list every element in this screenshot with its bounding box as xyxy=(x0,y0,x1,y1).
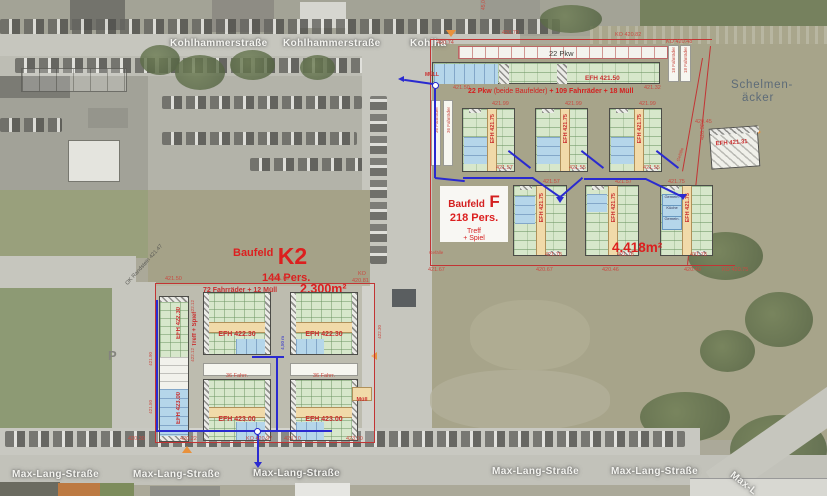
building-elevation-label: EFH 421.31 xyxy=(716,139,748,147)
stair-core xyxy=(592,186,604,190)
building-elevation-label: EFH 423.00 xyxy=(176,392,182,424)
path-line xyxy=(584,178,646,180)
summary-bold: 22 Pkw xyxy=(468,88,492,95)
baufeld-k2-letter: K2 xyxy=(278,243,307,269)
building-f-mid-3: EFH 421.75 xyxy=(609,108,662,172)
street-label-maxlang: Max-Lang-Straße xyxy=(12,469,99,480)
tree xyxy=(140,45,180,75)
tree xyxy=(745,292,813,347)
elevation-number: 420.40 xyxy=(684,267,701,273)
building-efh-42131: EFH 421.31 xyxy=(709,125,761,169)
muell-label: MÜLL xyxy=(425,72,439,78)
apartment-cells-blue xyxy=(587,194,607,212)
tree xyxy=(540,5,602,33)
elevation-number: 420.70 xyxy=(502,30,519,36)
parked-cars-column xyxy=(370,96,387,264)
baufeld-f-treff: Treff xyxy=(440,228,508,235)
baufeld-f-letter: F xyxy=(489,192,499,211)
elevation-number: 420.32 xyxy=(700,123,706,140)
bike-strip-36: 36 Fahrr. xyxy=(203,363,271,376)
building-k2-r1-right: EFH 422.30 xyxy=(290,292,358,355)
stair-core xyxy=(469,109,481,113)
tree xyxy=(230,50,275,80)
aerial-white-building xyxy=(68,140,120,182)
community-cell: Gemein. xyxy=(662,216,682,230)
elevation-number: 421.55 xyxy=(569,165,586,171)
elevation-number: KO 420.82 xyxy=(615,32,641,38)
muell-box: Müll xyxy=(352,387,372,401)
elevation-number: 421.50 xyxy=(148,400,153,414)
elevation-number: 421.50 xyxy=(165,276,182,282)
stair-core xyxy=(557,64,567,84)
building-elevation-label: EFH 421.75 xyxy=(490,114,496,143)
access-strip: EFH 422.30 xyxy=(209,322,265,333)
elevation-number: 420.81 xyxy=(352,278,369,284)
summary-regular: (beide Baufelder) xyxy=(492,88,550,95)
stair-core xyxy=(352,293,357,354)
path-arrow-icon xyxy=(679,194,687,200)
parked-cars-row xyxy=(162,96,362,109)
building-elevation-label: EFH 421.75 xyxy=(637,114,643,143)
aerial-annotation-box xyxy=(21,68,127,92)
survey-marker-icon xyxy=(446,30,456,37)
street-label-maxlang: Max-Lang-Straße xyxy=(133,469,220,480)
elevation-number: 421.99 xyxy=(492,101,509,107)
tree xyxy=(175,55,225,90)
parked-cars-row xyxy=(162,132,357,145)
apartment-cells-blue xyxy=(611,137,634,164)
apartment-cells-blue xyxy=(515,196,535,224)
tree xyxy=(700,330,755,372)
dimension-label: 45,00 xyxy=(481,0,487,10)
baufeld-f-spiel: + Spiel xyxy=(440,235,508,242)
apartment-cells-green xyxy=(160,302,188,357)
street-label-kohlhammer: Kohlhammerstraße xyxy=(170,38,268,49)
baufeld-f-area: 4.418m² xyxy=(612,240,662,255)
gefaelle-label: Gefälle xyxy=(429,250,443,255)
f-summary-annotation: 22 Pkw (beide Baufelder) + 109 Fahrräder… xyxy=(468,88,633,95)
elevation-number: 423.10 xyxy=(284,436,301,442)
aerial-hedge xyxy=(640,0,827,26)
bike-strip-36: 36 Fahrräder xyxy=(431,100,441,166)
aerial-field-bottom-left xyxy=(0,288,112,444)
elevation-number: 420.22 xyxy=(180,436,197,442)
apartment-cells-blue xyxy=(434,64,498,84)
bike-strip-label: 36 Fahrräder xyxy=(446,107,451,133)
elevation-number: 422.12 xyxy=(190,348,195,362)
apartment-cells-blue xyxy=(296,339,324,354)
stair-core xyxy=(542,109,554,113)
elevation-number: 422.12 xyxy=(190,300,195,314)
aerial-building xyxy=(690,478,827,496)
site-plan-canvas: Kohlhammerstraße Kohlhammerstraße Kohlha… xyxy=(0,0,827,496)
truck-white xyxy=(295,483,350,496)
elevation-number: 421.75 xyxy=(668,179,685,185)
path-node xyxy=(432,82,439,89)
building-elevation-label: EFH 422.30 xyxy=(218,331,255,338)
access-strip: EFH 421.75 xyxy=(634,109,644,171)
parking-strip-22pkw: 22 Pkw xyxy=(458,46,668,59)
parked-cars-row xyxy=(0,118,62,132)
community-cell-label: Gemein. xyxy=(663,217,681,221)
elevation-number: 421.32 xyxy=(644,85,661,91)
elevation-number: KO xyxy=(358,271,366,277)
building-f-mid-1: EFH 421.75 xyxy=(462,108,515,172)
bike-strip-18: 18 Fahrräder xyxy=(668,45,679,82)
elevation-number: 420.46 xyxy=(602,267,619,273)
path-arrow-icon xyxy=(556,197,564,203)
bike-strip-36: 36 Fahrr. xyxy=(290,363,358,376)
building-elevation-label: EFH 422.30 xyxy=(305,331,342,338)
apartment-cells-blue xyxy=(464,137,487,164)
field-patch xyxy=(430,370,610,430)
elevation-number: 421.78 xyxy=(690,252,707,258)
building-f-mid-2: EFH 421.75 xyxy=(535,108,588,172)
building-elevation-label: EFH 421.75 xyxy=(611,193,617,222)
tree xyxy=(300,55,335,80)
apartment-cells-blue xyxy=(160,389,188,436)
elevation-number: 421.99 xyxy=(565,101,582,107)
access-strip: EFH 423.00 xyxy=(209,407,265,418)
district-label-line2: äcker xyxy=(742,92,774,104)
stair-core xyxy=(265,293,270,354)
f-boundary-bottom xyxy=(430,265,735,266)
dumpster xyxy=(392,289,416,307)
building-k2-r1-left: EFH 422.30 xyxy=(203,292,271,355)
parking-strip-label: 22 Pkw xyxy=(549,49,574,58)
container-green xyxy=(100,483,134,496)
parking-p-label: P xyxy=(108,348,117,363)
street-label-maxlang: Max-Lang-Straße xyxy=(611,466,698,477)
elevation-number: 423.00 xyxy=(346,436,363,442)
path-line xyxy=(463,177,533,179)
building-elevation-label: EFH 422.30 xyxy=(176,307,182,339)
elevation-number: KO 420.48 xyxy=(666,39,692,45)
district-label-line1: Schelmen- xyxy=(731,79,793,91)
street-label-kohlhammer: Kohlhammerstraße xyxy=(283,38,381,49)
building-row-a: EFH 421.50 xyxy=(432,62,660,84)
path-line xyxy=(434,89,436,178)
baufeld-f-persons: 218 Pers. xyxy=(440,212,508,224)
stair-core xyxy=(616,109,628,113)
baufeld-f-title-prefix: Baufeld xyxy=(448,199,485,210)
elevation-number: 421.99 xyxy=(639,101,656,107)
elevation-number: 421.90 xyxy=(148,352,153,366)
aerial-building xyxy=(88,108,128,128)
path-line xyxy=(276,357,278,432)
elevation-number: 421.55 xyxy=(643,165,660,171)
survey-marker-icon xyxy=(182,446,192,453)
access-strip: EFH 422.30 xyxy=(296,322,352,333)
elevation-number: 421.66 xyxy=(272,276,289,282)
bike-strip-18: 18 Fahrräder xyxy=(680,45,691,82)
apartment-cells-blue xyxy=(236,339,265,354)
baufeld-k2-title-prefix: Baufeld xyxy=(233,247,273,259)
building-elevation-label: EFH 421.75 xyxy=(563,114,569,143)
container xyxy=(0,482,60,496)
elevation-number: 420.74 xyxy=(437,40,454,46)
elevation-number: 421.78 xyxy=(545,252,562,258)
street-label-maxlang: Max-Lang-Straße xyxy=(492,466,579,477)
apartment-cells-blue xyxy=(537,137,560,164)
parked-cars-row xyxy=(0,19,560,34)
access-strip: EFH 423.00 xyxy=(296,407,352,418)
elevation-number: 420.30 xyxy=(128,436,145,442)
bike-strip-36: 36 Fahrräder xyxy=(443,100,453,166)
path-arrow-icon xyxy=(254,462,262,468)
elevation-number: 422.30 xyxy=(377,325,382,339)
stair-core xyxy=(520,186,532,190)
aerial-structure xyxy=(150,486,220,496)
field-patch xyxy=(470,300,590,370)
alley-dimension-label: 4,50 m xyxy=(280,336,285,350)
elevation-number: 420.67 xyxy=(536,267,553,273)
elevation-number: 421.57 xyxy=(496,165,513,171)
elevation-number: 421.67 xyxy=(428,267,445,273)
bike-strip-label: 18 Fahrräder xyxy=(671,47,676,73)
bike-strip-label: 18 Fahrräder xyxy=(683,47,688,73)
baufeld-f-label-box: Baufeld F 218 Pers. Treff + Spiel xyxy=(440,186,508,242)
elevation-number: 421.57 xyxy=(543,179,560,185)
summary-bold: + 109 Fahrräder + 18 Müll xyxy=(549,88,633,95)
path-line xyxy=(156,430,332,432)
baufeld-k2-title: Baufeld K2 xyxy=(233,243,307,270)
baufeld-f-title: Baufeld F xyxy=(440,192,508,212)
aerial-field-mid xyxy=(148,190,370,286)
muell-label: Müll xyxy=(357,397,368,403)
path-arrow-icon xyxy=(398,76,404,82)
treff-spiel-label: Treff + Spiel xyxy=(192,312,198,346)
path-line xyxy=(252,356,284,358)
building-elevation-label: EFH 421.50 xyxy=(585,75,620,82)
path-node xyxy=(254,428,261,435)
street-label-maxlang: Max-Lang-Straße xyxy=(253,468,340,479)
elevation-number: KO 420.75 xyxy=(722,267,748,273)
access-strip: EFH 421.75 xyxy=(487,109,497,171)
apartment-cells-white xyxy=(160,357,188,389)
community-cell-label: Küche xyxy=(663,206,681,210)
container-orange xyxy=(58,483,100,496)
stair-core xyxy=(710,126,759,135)
parked-cars-row xyxy=(250,158,365,171)
access-strip: EFH 421.75 xyxy=(536,186,546,255)
path-line xyxy=(156,300,158,432)
stair-core xyxy=(499,64,509,84)
building-elevation-label: EFH 421.75 xyxy=(539,193,545,222)
aerial-field-left xyxy=(0,190,148,258)
access-strip: EFH 421.75 xyxy=(560,109,570,171)
elevation-number: KO 420.97 xyxy=(246,436,272,442)
building-k2-left-column: EFH 422.30 EFH 423.00 xyxy=(159,296,189,442)
